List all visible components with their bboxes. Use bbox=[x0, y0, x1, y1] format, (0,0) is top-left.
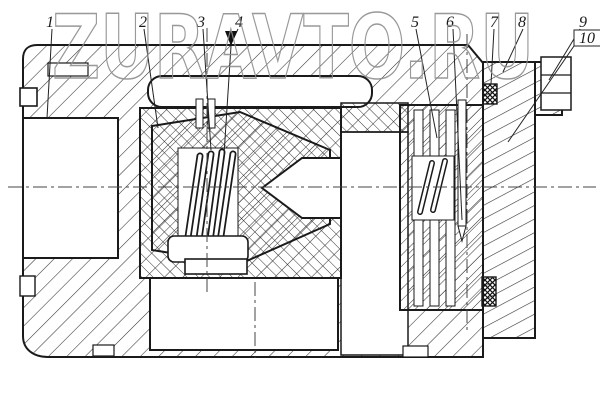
left-notch-lower bbox=[20, 276, 35, 296]
o-ring-seal-bottom bbox=[482, 277, 496, 306]
left-notch-upper bbox=[20, 88, 37, 106]
port-fitting bbox=[541, 57, 571, 110]
watermark-text: ZURAVTO.RU bbox=[52, 0, 534, 99]
left-bore bbox=[23, 118, 118, 258]
callout-10: 10 bbox=[579, 30, 595, 47]
stem-guide-left bbox=[196, 99, 203, 128]
technical-drawing: 1 2 3 4 5 6 7 8 9 10 ZURAVTO.RU bbox=[0, 0, 600, 402]
bottom-notch-right bbox=[403, 346, 428, 357]
lower-chamber bbox=[150, 278, 338, 350]
valve-assembly bbox=[140, 99, 341, 278]
right-assembly bbox=[400, 100, 483, 310]
bottom-notch-left bbox=[93, 345, 114, 356]
air-channel bbox=[341, 132, 408, 355]
valve-seat-step bbox=[185, 259, 247, 274]
callout-9: 9 bbox=[579, 14, 587, 31]
valve-seat-ring bbox=[168, 236, 248, 262]
channel-cover-section bbox=[341, 103, 408, 132]
drawing-canvas: 1 2 3 4 5 6 7 8 9 10 ZURAVTO.RU bbox=[0, 0, 600, 402]
